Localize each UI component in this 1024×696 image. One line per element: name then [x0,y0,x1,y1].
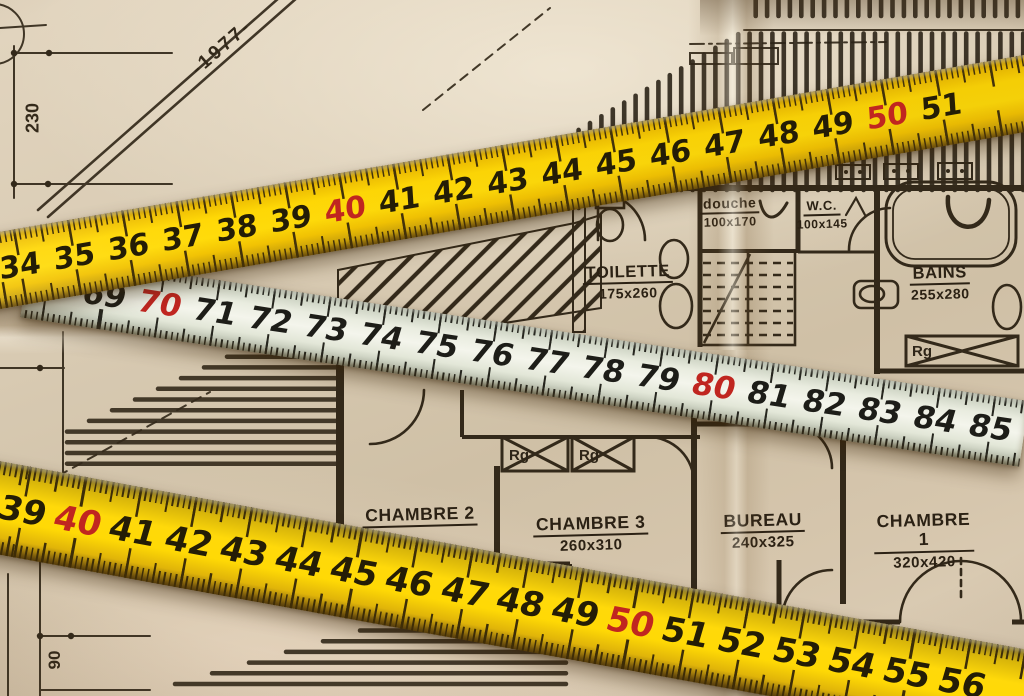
room-name: TOILETTE [582,262,673,285]
tape-number: 56 [933,660,991,696]
tape-number: 51 [657,610,715,657]
tape-number: 50 [602,599,660,646]
room-name: CHAMBRE 1 [873,510,974,554]
tape-number: 55 [878,650,936,696]
tape-number: 45 [325,549,383,596]
tape-number: 44 [540,152,583,194]
tape-number: 49 [546,589,604,636]
tape-number: 36 [107,226,150,268]
tape-number: 52 [712,620,770,667]
tape-number: 42 [432,170,475,212]
room-label-chambre-1: CHAMBRE 1 320x420 [873,510,975,573]
tape-number: 43 [486,161,529,203]
room-name: W.C. [803,199,840,217]
tape-number: 39 [269,198,312,240]
room-name: douche [700,195,760,215]
tape-number: 78 [576,350,629,391]
room-label-wc: W.C. 100x145 [796,198,848,232]
tape-number: 47 [436,569,494,616]
tape-number: 50 [866,95,909,137]
tape-number: 74 [355,317,408,358]
tape-number: 85 [964,408,1017,449]
tape-number: 38 [215,208,258,250]
room-label-douche: douche 100x170 [700,195,760,231]
tape-number: 81 [742,374,795,415]
room-name: CHAMBRE 3 [533,512,649,537]
tape-number: 47 [703,123,746,165]
tape-number: 70 [133,283,186,324]
staircase [701,251,795,345]
room-label-bureau: BUREAU 240x325 [720,510,806,553]
tape-number: 48 [757,114,800,156]
tape-number: 45 [595,142,638,184]
room-size: 100x145 [797,218,848,233]
photo-tape-measures-on-floor-plan: Rg Rg Rg douche 100x170 W.C. 100x145 TOI… [0,0,1024,696]
tape-number: 48 [491,579,549,626]
tape-number: 84 [909,399,962,440]
tape-number: 39 [0,488,52,535]
room-size: 320x420 [874,553,974,572]
tape-number: 40 [324,189,367,231]
tape-number: 72 [244,300,297,341]
tape-number: 41 [378,180,421,222]
radiator-label: Rg [509,447,529,464]
room-size: 240x325 [721,534,806,553]
tape-number: 54 [823,640,881,687]
radiator-label: Rg [579,447,599,464]
tape-number: 42 [159,518,217,565]
tape-number: 73 [299,308,352,349]
radiator-label: Rg [912,343,932,360]
room-label-chambre-3: CHAMBRE 3 260x310 [533,512,649,556]
tape-number: 49 [811,105,854,147]
tape-number: 80 [687,366,740,407]
tape-number: 77 [521,341,574,382]
tape-number: 46 [381,559,439,606]
tape-number: 76 [466,333,519,374]
room-name: BAINS [909,263,970,286]
tape-number: 44 [270,539,328,586]
room-label-toilette: TOILETTE 175x260 [582,262,673,303]
tape-number: 51 [920,86,963,128]
tape-number: 75 [410,325,463,366]
tape-number: 40 [49,498,107,545]
room-name: CHAMBRE 2 [362,503,478,528]
tape-number: 82 [798,383,851,424]
tape-number: 43 [215,528,273,575]
tape-number: 46 [649,133,692,175]
room-label-bains: BAINS 255x280 [909,263,970,303]
tape-number: 71 [189,292,242,333]
dimension-label-90: 90 [45,651,65,670]
tape-number: 79 [632,358,685,399]
tape-number: 34 [0,245,42,287]
tape-number: 53 [767,630,825,677]
dimension-label-230: 230 [23,103,44,133]
room-size: 255x280 [910,286,971,303]
tape-number: 35 [53,236,96,278]
room-size: 175x260 [583,285,674,303]
room-size: 260x310 [533,537,649,557]
appliance-boxes [836,163,972,179]
room-name: BUREAU [720,510,805,534]
tape-number: 41 [104,508,162,555]
tape-number: 37 [161,217,204,259]
tape-number: 83 [853,391,906,432]
room-label-chambre-2: CHAMBRE 2 [362,503,478,528]
room-size: 100x170 [700,216,760,231]
